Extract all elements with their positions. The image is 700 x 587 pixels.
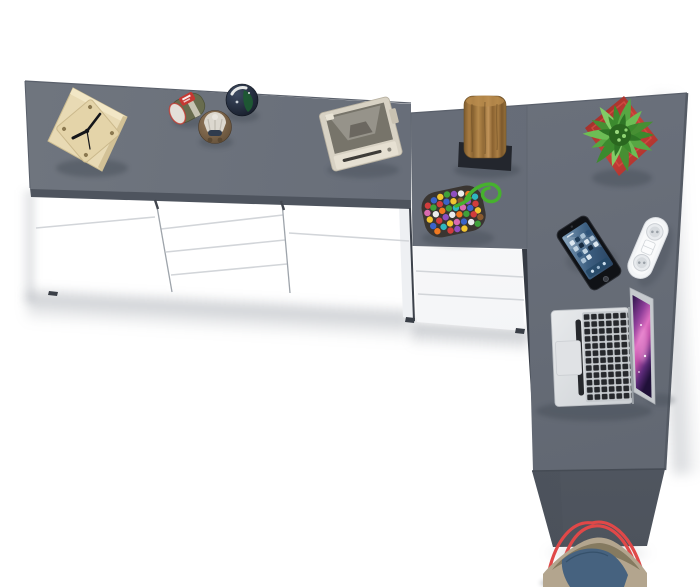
tote-bag	[543, 522, 647, 587]
cube-clock	[48, 88, 127, 171]
pedestal-seams	[416, 271, 524, 300]
plant	[582, 96, 658, 176]
scene	[0, 0, 700, 587]
laptop	[551, 288, 655, 407]
figurine-brown	[199, 111, 232, 144]
objects-overlay	[0, 0, 700, 587]
bead-pouch	[419, 183, 500, 241]
furniture-feet	[48, 291, 525, 334]
sideboard-seams	[36, 200, 414, 321]
log-sculpture	[458, 96, 512, 172]
camera	[319, 95, 407, 172]
figurine-dark	[226, 84, 258, 116]
